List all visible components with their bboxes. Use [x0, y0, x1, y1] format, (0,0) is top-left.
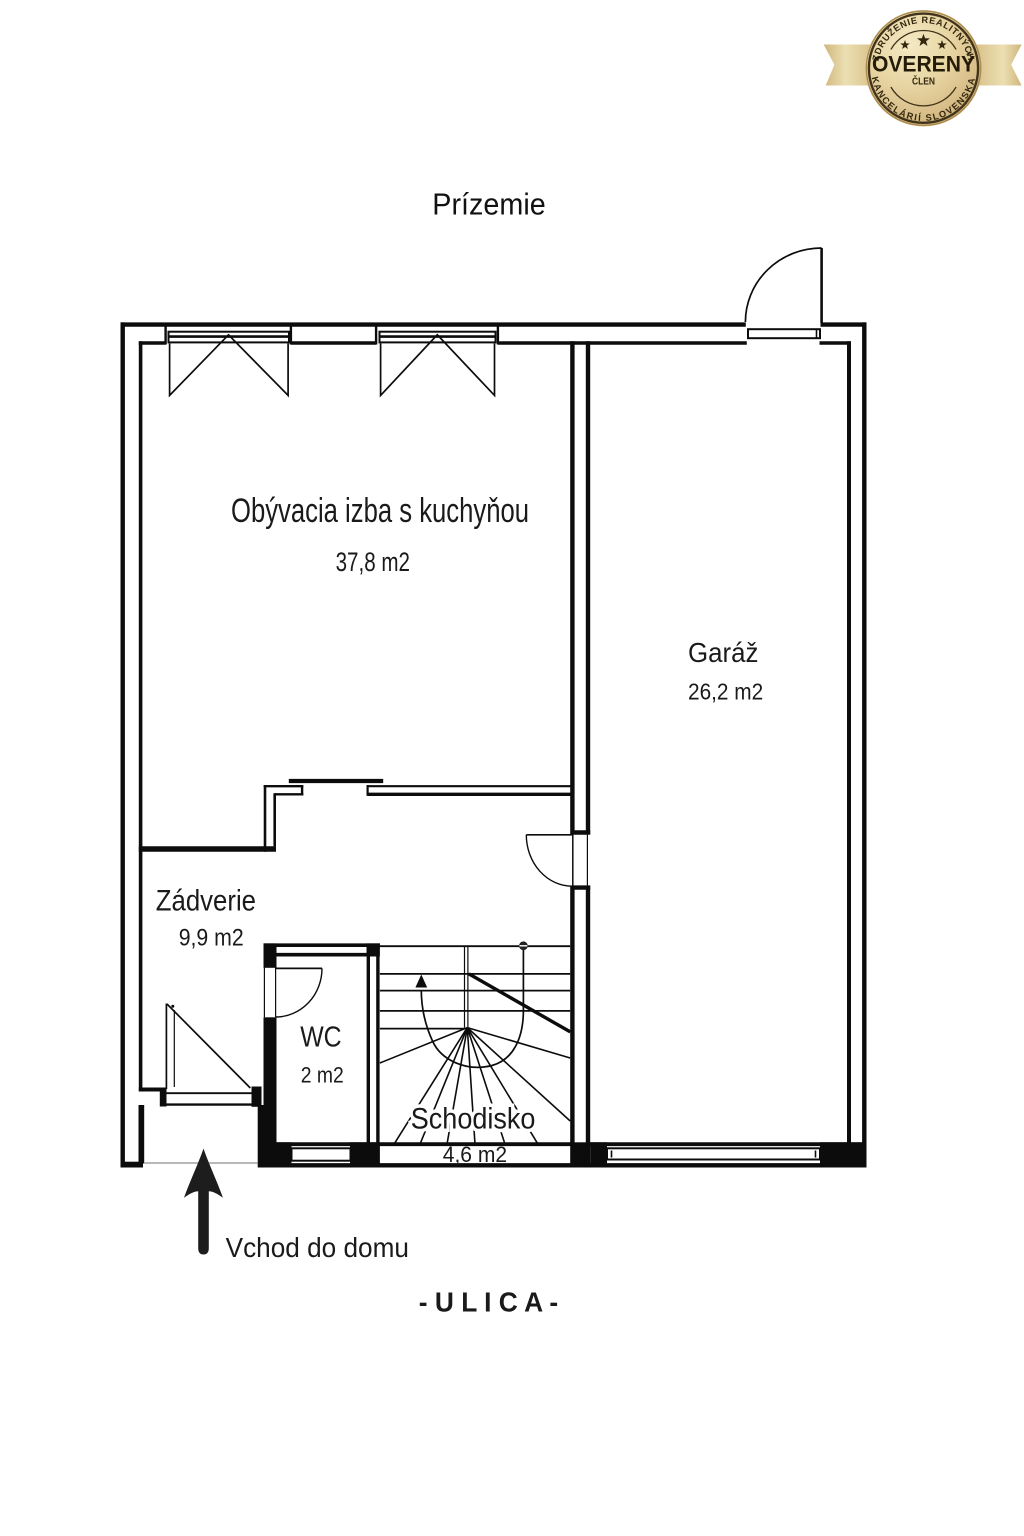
svg-text:Garáž: Garáž — [688, 637, 758, 668]
svg-text:9,9 m2: 9,9 m2 — [179, 925, 244, 952]
svg-text:OVERENÝ: OVERENÝ — [872, 51, 975, 76]
svg-text:Prízemie: Prízemie — [432, 187, 545, 221]
svg-text:Schodisko: Schodisko — [411, 1103, 536, 1136]
svg-text:- U L I C A -: - U L I C A - — [419, 1287, 558, 1318]
svg-text:Zádverie: Zádverie — [156, 884, 256, 917]
svg-text:ČLEN: ČLEN — [912, 74, 935, 87]
svg-text:WC: WC — [300, 1021, 341, 1053]
svg-text:26,2 m2: 26,2 m2 — [688, 678, 763, 704]
svg-text:Obývacia izba s kuchyňou: Obývacia izba s kuchyňou — [231, 492, 529, 530]
svg-text:37,8 m2: 37,8 m2 — [336, 547, 410, 577]
svg-text:2 m2: 2 m2 — [301, 1063, 344, 1088]
svg-text:Vchod do domu: Vchod do domu — [226, 1232, 409, 1263]
svg-text:4,6 m2: 4,6 m2 — [443, 1142, 507, 1167]
